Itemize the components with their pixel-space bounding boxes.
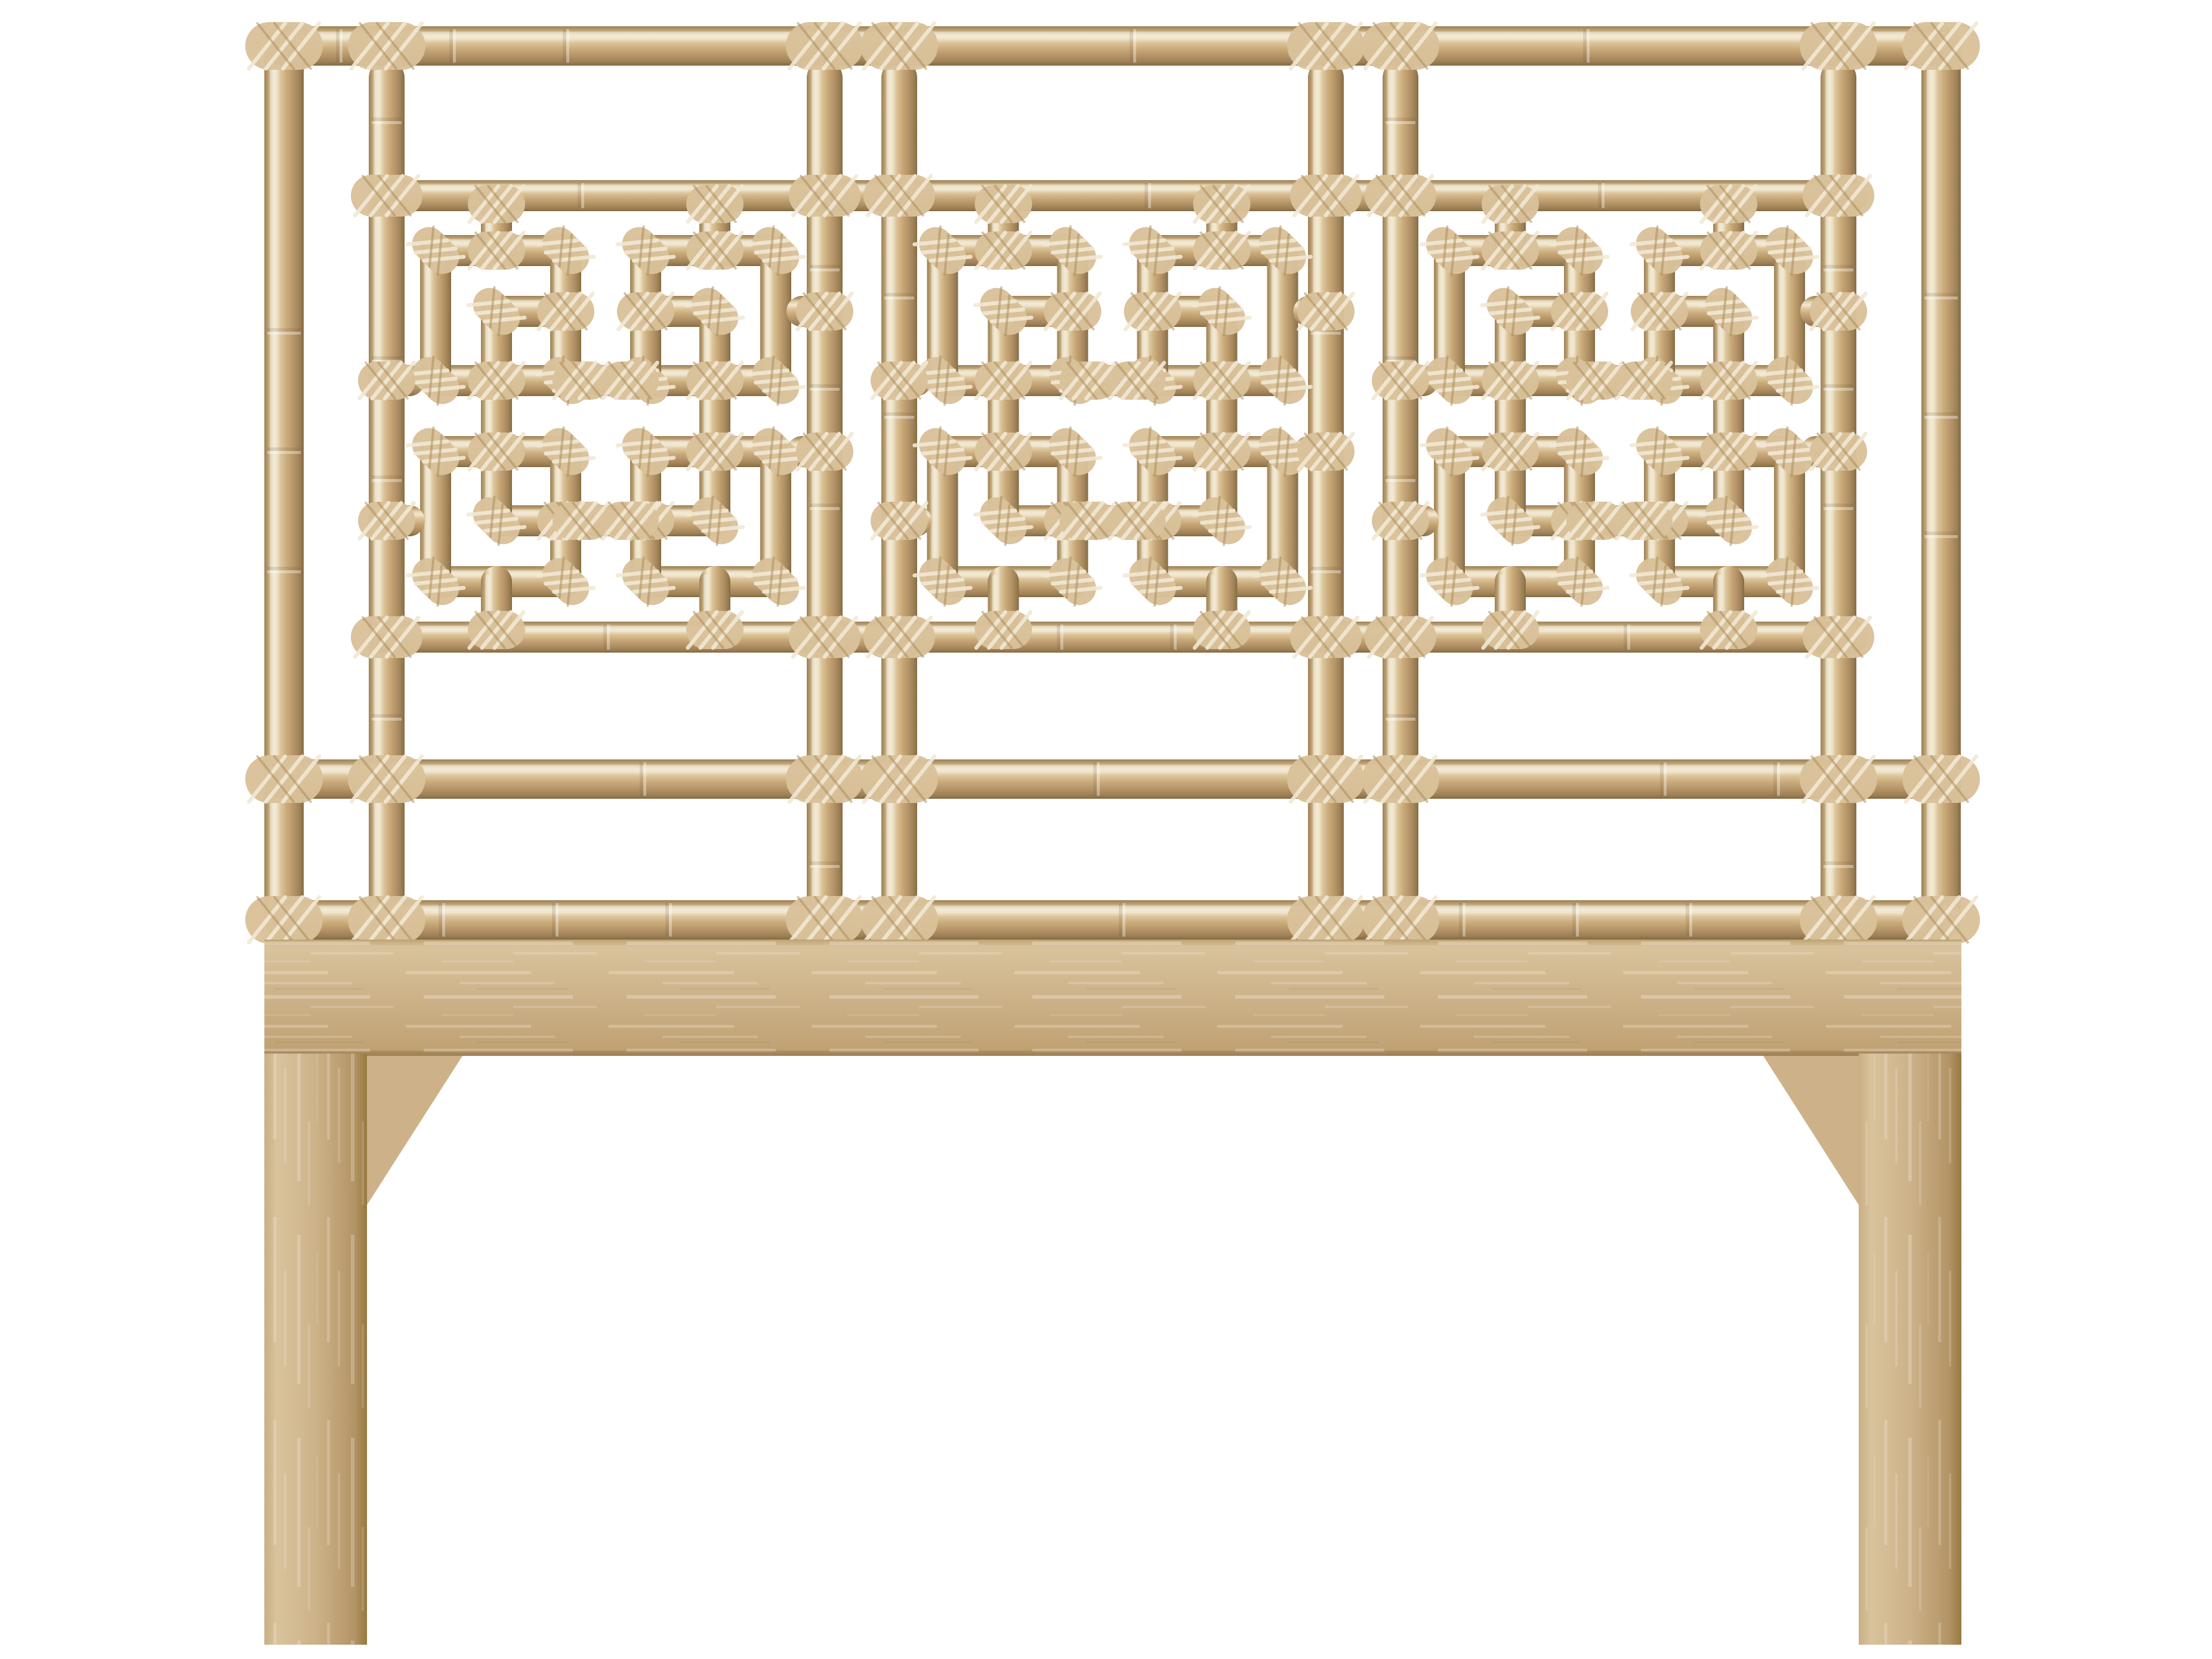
rattan-lashing-wrap: [1810, 432, 1867, 471]
rattan-lashing-wrap: [1700, 362, 1757, 400]
rattan-lashing-wrap: [601, 362, 659, 400]
rattan-lashing-wrap: [601, 502, 659, 540]
rattan-lashing-wrap: [468, 231, 525, 270]
rattan-lashing-wrap: [796, 292, 853, 330]
rattan-lashing-wrap: [1700, 611, 1757, 649]
rattan-lashing-wrap: [1372, 502, 1429, 540]
rattan-lashing-wrap: [786, 22, 863, 70]
rattan-lashing-wrap: [786, 755, 863, 803]
rattan-lashing-wrap: [860, 755, 938, 803]
rattan-lashing-wrap: [1193, 611, 1251, 649]
rattan-lashing-wrap: [1803, 616, 1874, 658]
rattan-lashing-wrap: [1902, 22, 1980, 70]
rattan-lashing-wrap: [1803, 175, 1874, 217]
rattan-lashing-wrap: [1566, 502, 1624, 540]
rattan-lashing-wrap: [1551, 292, 1608, 330]
rattan-lashing-wrap: [1482, 231, 1539, 270]
rattan-lashing-wrap: [1482, 611, 1539, 649]
rattan-lashing-wrap: [786, 896, 863, 944]
rattan-lashing-wrap: [1810, 292, 1867, 330]
rattan-lashing-wrap: [348, 22, 425, 70]
rattan-lashing-wrap: [863, 175, 935, 217]
rattan-lashing-wrap: [1700, 185, 1757, 223]
rattan-lashing-wrap: [863, 616, 935, 658]
rattan-lashing-wrap: [1700, 231, 1757, 270]
rattan-lashing-wrap: [1482, 185, 1539, 223]
rattan-lashing-wrap: [1365, 616, 1436, 658]
rattan-lashing-wrap: [1362, 896, 1439, 944]
rattan-lashing-wrap: [1193, 432, 1251, 471]
rattan-lashing-wrap: [686, 432, 743, 471]
leg-left-whitewash: [264, 1054, 367, 1645]
rattan-lashing-wrap: [348, 896, 425, 944]
rattan-lashing-wrap: [351, 175, 422, 217]
rattan-lashing-wrap: [1631, 292, 1688, 330]
leg-right-whitewash: [1859, 1054, 1961, 1645]
rattan-lashing-wrap: [1362, 22, 1439, 70]
rattan-lashing-wrap: [245, 896, 323, 944]
rattan-lashing-wrap: [871, 502, 928, 540]
rattan-lashing-wrap: [1044, 292, 1102, 330]
rattan-lashing-wrap: [1193, 231, 1251, 270]
product-photo: [0, 0, 2212, 1659]
rattan-lashing-wrap: [1193, 185, 1251, 223]
rattan-lashing-wrap: [1290, 616, 1362, 658]
rattan-lashing-wrap: [1566, 362, 1624, 400]
rattan-lashing-wrap: [975, 432, 1032, 471]
rattan-lashing-wrap: [1800, 896, 1877, 944]
rattan-lashing-wrap: [789, 175, 860, 217]
rattan-lashing-wrap: [1362, 755, 1439, 803]
rattan-lashing-wrap: [1109, 362, 1166, 400]
rattan-lashing-wrap: [975, 362, 1032, 400]
rattan-lashing-wrap: [351, 616, 422, 658]
rattan-lashing-wrap: [1700, 432, 1757, 471]
rattan-lashing-wrap: [860, 22, 938, 70]
rattan-lashing-wrap: [358, 362, 415, 400]
rattan-lashing-wrap: [1060, 362, 1117, 400]
rattan-headboard-image: [0, 0, 2212, 1659]
rattan-lashing-wrap: [796, 432, 853, 471]
rattan-lashing-wrap: [686, 185, 743, 223]
rattan-lashing-wrap: [975, 231, 1032, 270]
rattan-lashing-wrap: [1287, 896, 1365, 944]
rattan-lashing-wrap: [537, 292, 594, 330]
rattan-lashing-wrap: [1902, 755, 1980, 803]
rattan-lashing-wrap: [1800, 755, 1877, 803]
rattan-lashing-wrap: [1902, 896, 1980, 944]
rattan-lashing-wrap: [245, 22, 323, 70]
rattan-lashing-wrap: [348, 755, 425, 803]
rattan-lashing-wrap: [553, 362, 610, 400]
rattan-lashing-wrap: [553, 502, 610, 540]
rattan-lashing-wrap: [686, 611, 743, 649]
rattan-lashing-wrap: [1290, 175, 1362, 217]
rattan-lashing-wrap: [1482, 362, 1539, 400]
rattan-lashing-wrap: [871, 362, 928, 400]
rattan-lashing-wrap: [1615, 362, 1673, 400]
rattan-lashing-wrap: [1297, 432, 1355, 471]
rattan-lashing-wrap: [245, 755, 323, 803]
rattan-lashing-wrap: [1109, 502, 1166, 540]
rattan-lashing-wrap: [686, 231, 743, 270]
rattan-lashing-wrap: [1193, 362, 1251, 400]
rattan-lashing-wrap: [975, 611, 1032, 649]
rattan-lashing-wrap: [860, 896, 938, 944]
rattan-lashing-wrap: [789, 616, 860, 658]
rattan-lashing-wrap: [1372, 362, 1429, 400]
rattan-lashing-wrap: [1365, 175, 1436, 217]
rattan-lashing-wrap: [1287, 755, 1365, 803]
rattan-lashing-wrap: [1482, 432, 1539, 471]
rattan-lashing-wrap: [468, 185, 525, 223]
rattan-lashing-wrap: [686, 362, 743, 400]
rattan-lashing-wrap: [1615, 502, 1673, 540]
rattan-lashing-wrap: [1060, 502, 1117, 540]
rattan-lashing-wrap: [1297, 292, 1355, 330]
apron-whitewash: [264, 940, 1961, 1056]
rattan-lashing-wrap: [1124, 292, 1181, 330]
rattan-lashing-wrap: [617, 292, 674, 330]
rattan-lashing-wrap: [358, 502, 415, 540]
rattan-lashing-wrap: [1287, 22, 1365, 70]
rattan-lashing-wrap: [468, 362, 525, 400]
rattan-lashing-wrap: [468, 432, 525, 471]
rattan-lashing-wrap: [468, 611, 525, 649]
rattan-lashing-wrap: [975, 185, 1032, 223]
rattan-lashing-wrap: [1800, 22, 1877, 70]
headboard-photo-svg: [0, 0, 2212, 1659]
